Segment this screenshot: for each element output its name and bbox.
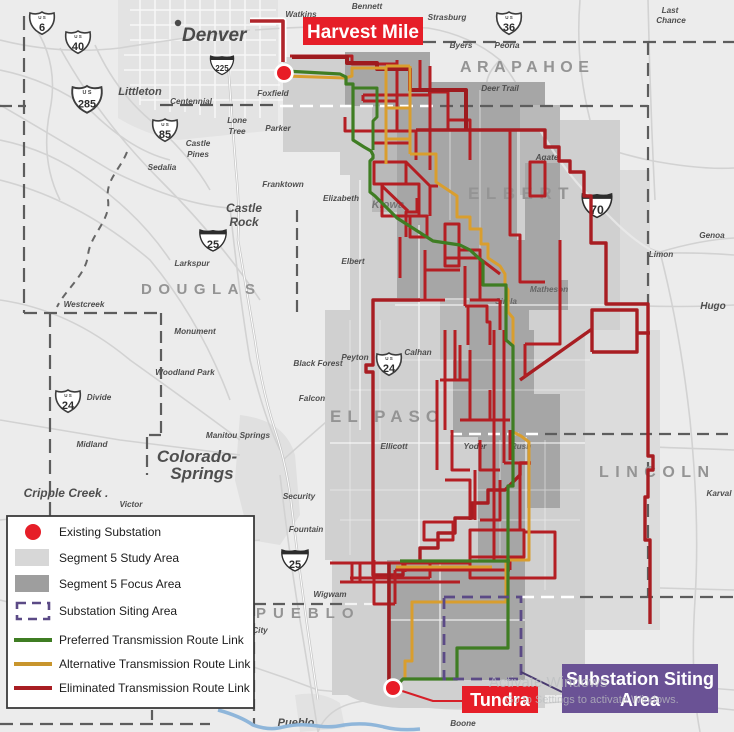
svg-text:Activate Windows: Activate Windows [489, 674, 607, 691]
svg-text:LINCOLN: LINCOLN [599, 464, 716, 481]
svg-text:6: 6 [39, 22, 45, 34]
svg-text:Segment 5 Study Area: Segment 5 Study Area [59, 551, 179, 565]
svg-text:Matheson: Matheson [530, 285, 568, 294]
svg-text:85: 85 [159, 129, 171, 141]
svg-text:Harvest Mile: Harvest Mile [307, 22, 419, 43]
svg-text:Manitou Springs: Manitou Springs [206, 431, 271, 440]
svg-text:Boone: Boone [450, 719, 476, 728]
svg-text:Substation Siting Area: Substation Siting Area [59, 604, 177, 618]
svg-text:Yoder: Yoder [464, 442, 488, 451]
svg-text:Castle: Castle [186, 139, 211, 148]
svg-text:Existing Substation: Existing Substation [59, 525, 161, 539]
svg-text:Littleton: Littleton [118, 86, 162, 98]
svg-text:Preferred Transmission Route L: Preferred Transmission Route Link [59, 633, 245, 647]
svg-text:Cripple Creek .: Cripple Creek . [24, 486, 109, 500]
svg-text:Black Forest: Black Forest [293, 359, 342, 368]
svg-text:Karval: Karval [706, 489, 732, 498]
svg-text:Byers: Byers [450, 41, 473, 50]
svg-text:Last: Last [662, 6, 679, 15]
svg-text:25: 25 [207, 239, 219, 251]
svg-text:Tree: Tree [228, 127, 246, 136]
svg-text:Castle: Castle [226, 201, 262, 215]
svg-text:Eliminated Transmission Route: Eliminated Transmission Route Link [59, 681, 251, 695]
svg-text:Lone: Lone [227, 116, 247, 125]
svg-text:Elbert: Elbert [341, 257, 364, 266]
svg-text:Sedalia: Sedalia [148, 163, 177, 172]
svg-text:Centennial: Centennial [170, 97, 213, 106]
svg-text:Calhan: Calhan [404, 348, 431, 357]
svg-text:225: 225 [215, 64, 229, 73]
svg-text:Victor: Victor [120, 500, 144, 509]
svg-text:Peoria: Peoria [494, 41, 519, 50]
svg-text:Chance: Chance [656, 16, 686, 25]
svg-text:ARAPAHOE: ARAPAHOE [460, 59, 594, 76]
svg-text:Foxfield: Foxfield [257, 89, 289, 98]
svg-text:Midland: Midland [77, 440, 109, 449]
svg-text:24: 24 [62, 400, 75, 412]
svg-text:36: 36 [503, 22, 515, 34]
svg-text:Hugo: Hugo [700, 301, 726, 312]
svg-text:Rock: Rock [229, 215, 260, 229]
svg-text:Limon: Limon [649, 250, 674, 259]
svg-text:Ellicott: Ellicott [380, 442, 408, 451]
svg-text:Security: Security [283, 492, 316, 501]
svg-text:PUEBLO: PUEBLO [256, 605, 361, 622]
svg-text:Go to Settings to activate Win: Go to Settings to activate Windows. [505, 694, 679, 706]
svg-text:Strasburg: Strasburg [428, 13, 467, 22]
svg-text:24: 24 [383, 363, 396, 375]
svg-text:Segment 5 Focus Area: Segment 5 Focus Area [59, 577, 181, 591]
svg-text:Franktown: Franktown [262, 180, 303, 189]
svg-text:Divide: Divide [87, 393, 112, 402]
svg-text:Alternative Transmission Route: Alternative Transmission Route Link [59, 657, 251, 671]
svg-text:Elizabeth: Elizabeth [323, 194, 359, 203]
svg-text:Pines: Pines [187, 150, 209, 159]
svg-text:DOUGLAS: DOUGLAS [141, 281, 262, 298]
svg-text:Springs: Springs [170, 464, 233, 483]
svg-text:40: 40 [72, 41, 84, 53]
svg-text:Parker: Parker [265, 124, 291, 133]
svg-text:Genoa: Genoa [699, 231, 725, 240]
svg-text:Falcon: Falcon [299, 394, 325, 403]
svg-text:Fountain: Fountain [289, 525, 324, 534]
svg-text:Deer Trail: Deer Trail [481, 84, 519, 93]
svg-text:Peyton: Peyton [341, 353, 368, 362]
svg-text:Monument: Monument [174, 327, 216, 336]
svg-text:Westcreek: Westcreek [64, 300, 105, 309]
svg-text:25: 25 [289, 559, 301, 571]
svg-text:EL PASO: EL PASO [330, 407, 445, 426]
svg-text:Woodland Park: Woodland Park [155, 368, 215, 377]
svg-text:ELBERT: ELBERT [468, 184, 575, 203]
svg-text:Larkspur: Larkspur [174, 259, 210, 268]
svg-text:Wigwam: Wigwam [313, 590, 346, 599]
svg-text:285: 285 [78, 99, 96, 111]
svg-text:Denver: Denver [182, 25, 248, 46]
svg-text:Bennett: Bennett [352, 2, 383, 11]
